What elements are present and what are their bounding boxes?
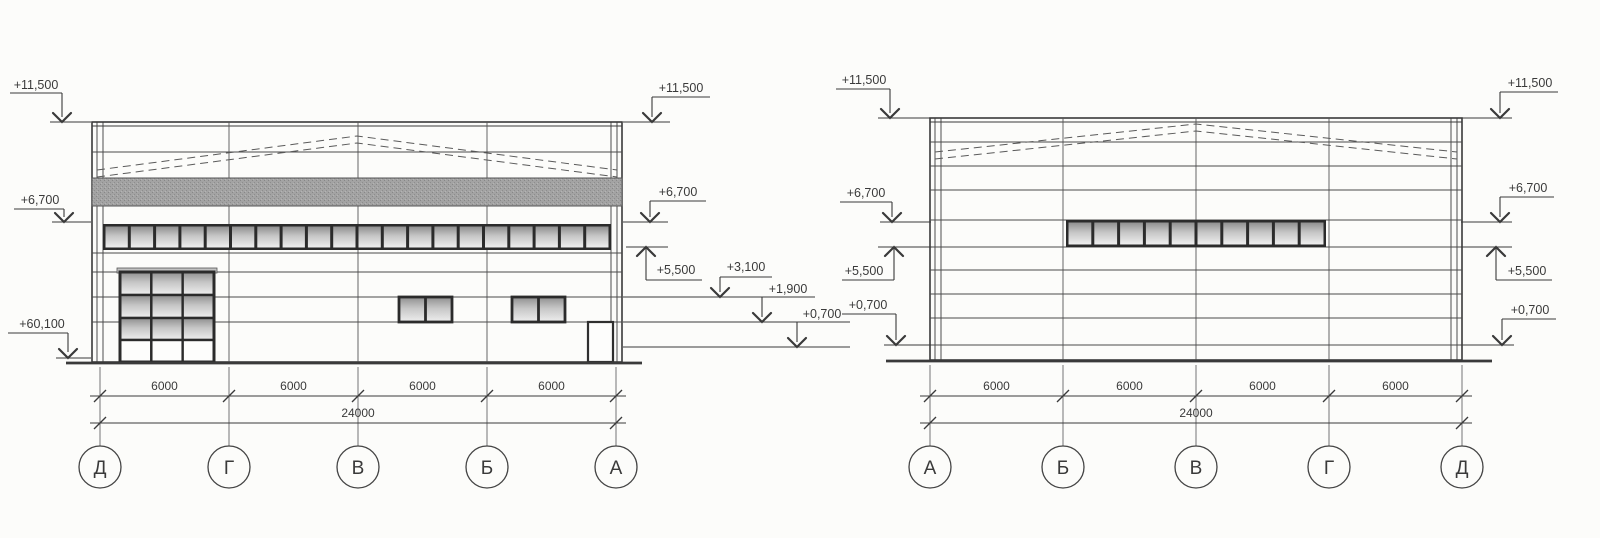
elevation-mark-label: +6,700 xyxy=(1509,181,1548,195)
window-pane xyxy=(409,227,431,248)
gate-panel xyxy=(120,295,151,318)
gate-panel xyxy=(183,340,214,362)
gate xyxy=(117,268,217,362)
elevation-mark-label: +11,500 xyxy=(842,73,887,87)
axis-bubble: А xyxy=(595,446,637,488)
dimension-label: 6000 xyxy=(1249,379,1276,393)
gate-panel xyxy=(183,295,214,318)
window-pane xyxy=(1275,223,1298,245)
window-pane xyxy=(1249,223,1272,245)
axis-bubble-label: Д xyxy=(94,458,107,479)
window-pane xyxy=(359,227,381,248)
small-window xyxy=(399,297,452,322)
elevation-marks: +11,500+6,700+5,500+0,700+11,500+6,700+5… xyxy=(836,73,1558,345)
dimension-label: 6000 xyxy=(1116,379,1143,393)
axis-bubble-label: А xyxy=(924,458,937,479)
gate-panel xyxy=(183,318,214,340)
elevation-mark-label: +5,500 xyxy=(845,264,884,278)
axis-bubble: Д xyxy=(79,446,121,488)
dimension-label: 6000 xyxy=(1382,379,1409,393)
elevation-mark-label: +0,700 xyxy=(803,307,842,321)
left-elevation: +11,500+6,700+60,100+11,500+6,700+5,500+… xyxy=(8,78,850,488)
elevation-mark: +11,500 xyxy=(10,78,91,122)
elevation-mark-label: +60,100 xyxy=(19,317,65,331)
elevation-mark: +6,700 xyxy=(14,193,91,222)
window-pane xyxy=(283,227,305,248)
window-pane xyxy=(308,227,330,248)
gate-panel xyxy=(151,318,182,340)
dimension-label: 6000 xyxy=(538,379,565,393)
window-pane xyxy=(1301,223,1324,245)
dimension-label: 6000 xyxy=(280,379,307,393)
window-pane xyxy=(586,227,608,248)
window-pane xyxy=(1094,223,1117,245)
gate-panel xyxy=(151,272,182,295)
elevation-mark: +0,700 xyxy=(842,298,931,345)
window-pane xyxy=(1223,223,1246,245)
window-pane xyxy=(1120,223,1143,245)
elevation-mark: +6,700 xyxy=(1461,181,1554,222)
dimension-label: 6000 xyxy=(151,379,178,393)
dimension-block: 600060006000600024000АБВГД xyxy=(909,365,1483,488)
axis-bubble-label: Г xyxy=(1324,458,1334,479)
window-pane xyxy=(131,227,153,248)
elevation-mark-label: +11,500 xyxy=(659,81,704,95)
elevation-drawing-canvas: +11,500+6,700+60,100+11,500+6,700+5,500+… xyxy=(0,0,1600,538)
axis-bubble-label: А xyxy=(610,458,623,479)
gate-panel xyxy=(120,340,151,362)
hatched-band xyxy=(92,178,622,206)
window-pane xyxy=(384,227,406,248)
window-pane xyxy=(333,227,355,248)
window-pane xyxy=(156,227,178,248)
dimension-label: 24000 xyxy=(341,406,375,420)
elevation-mark: +6,700 xyxy=(623,185,706,222)
axis-bubble: Г xyxy=(208,446,250,488)
window-ribbon xyxy=(103,224,611,250)
gate-panel xyxy=(120,318,151,340)
axis-bubble: В xyxy=(337,446,379,488)
elevation-mark: +11,500 xyxy=(836,73,931,118)
small-window xyxy=(512,297,565,322)
dimension-label: 24000 xyxy=(1179,406,1213,420)
window-pane xyxy=(106,227,128,248)
elevation-mark: +60,100 xyxy=(8,317,91,358)
window-pane xyxy=(536,227,558,248)
elevation-mark-label: +0,700 xyxy=(1511,303,1550,317)
window-pane xyxy=(485,227,507,248)
elevation-mark-label: +1,900 xyxy=(769,282,808,296)
window-pane xyxy=(561,227,583,248)
elevation-mark-label: +3,100 xyxy=(727,260,766,274)
elevation-mark: +5,500 xyxy=(1461,247,1552,280)
elevation-mark: +0,700 xyxy=(623,307,850,347)
axis-bubble: Д xyxy=(1441,446,1483,488)
elevation-mark-label: +0,700 xyxy=(849,298,888,312)
window-pane xyxy=(1069,223,1092,245)
elevation-mark-label: +6,700 xyxy=(847,186,886,200)
axis-bubble-label: Г xyxy=(224,458,234,479)
axis-bubble-label: Д xyxy=(1456,458,1469,479)
facade xyxy=(92,122,622,362)
elevation-mark-label: +5,500 xyxy=(657,263,696,277)
axis-bubble: Г xyxy=(1308,446,1350,488)
window-ribbon-frame xyxy=(103,224,611,250)
elevation-mark: +6,700 xyxy=(840,186,931,222)
elevation-mark-label: +6,700 xyxy=(659,185,698,199)
dimension-label: 6000 xyxy=(409,379,436,393)
axis-bubble: Б xyxy=(466,446,508,488)
window-pane xyxy=(232,227,254,248)
door xyxy=(588,322,613,362)
window-pane xyxy=(1198,223,1221,245)
elevation-mark: +11,500 xyxy=(1461,76,1558,118)
axis-bubble-label: В xyxy=(1190,458,1203,479)
window-pane xyxy=(207,227,229,248)
gate-panel xyxy=(183,272,214,295)
axis-bubble: Б xyxy=(1042,446,1084,488)
axis-bubble: В xyxy=(1175,446,1217,488)
window-pane xyxy=(460,227,482,248)
window-pane xyxy=(510,227,532,248)
gate-panel xyxy=(151,340,182,362)
axis-bubble-label: Б xyxy=(481,458,493,479)
right-elevation: +11,500+6,700+5,500+0,700+11,500+6,700+5… xyxy=(836,73,1558,488)
window-ribbon xyxy=(1066,220,1326,247)
elevation-mark-label: +6,700 xyxy=(21,193,60,207)
elevation-mark-label: +5,500 xyxy=(1508,264,1547,278)
axis-bubble: А xyxy=(909,446,951,488)
dimension-label: 6000 xyxy=(983,379,1010,393)
elevation-mark-label: +11,500 xyxy=(1508,76,1553,90)
elevation-mark-label: +11,500 xyxy=(14,78,59,92)
window-pane xyxy=(257,227,279,248)
gate-panel xyxy=(120,272,151,295)
window-pane xyxy=(434,227,456,248)
elevation-mark: +5,500 xyxy=(842,247,932,280)
drawing-sheet: +11,500+6,700+60,100+11,500+6,700+5,500+… xyxy=(0,0,1600,538)
roof-dashed-line xyxy=(97,136,617,170)
dimension-block: 600060006000600024000ДГВБА xyxy=(79,367,637,488)
window-pane xyxy=(1172,223,1195,245)
facade xyxy=(930,118,1462,360)
window-pane xyxy=(181,227,203,248)
elevation-mark: +5,500 xyxy=(626,247,702,280)
window-pane xyxy=(1146,223,1169,245)
axis-bubble-label: Б xyxy=(1057,458,1069,479)
gate-panel xyxy=(151,295,182,318)
elevation-mark: +0,700 xyxy=(1461,303,1556,345)
axis-bubble-label: В xyxy=(352,458,365,479)
elevation-mark: +11,500 xyxy=(623,81,710,122)
